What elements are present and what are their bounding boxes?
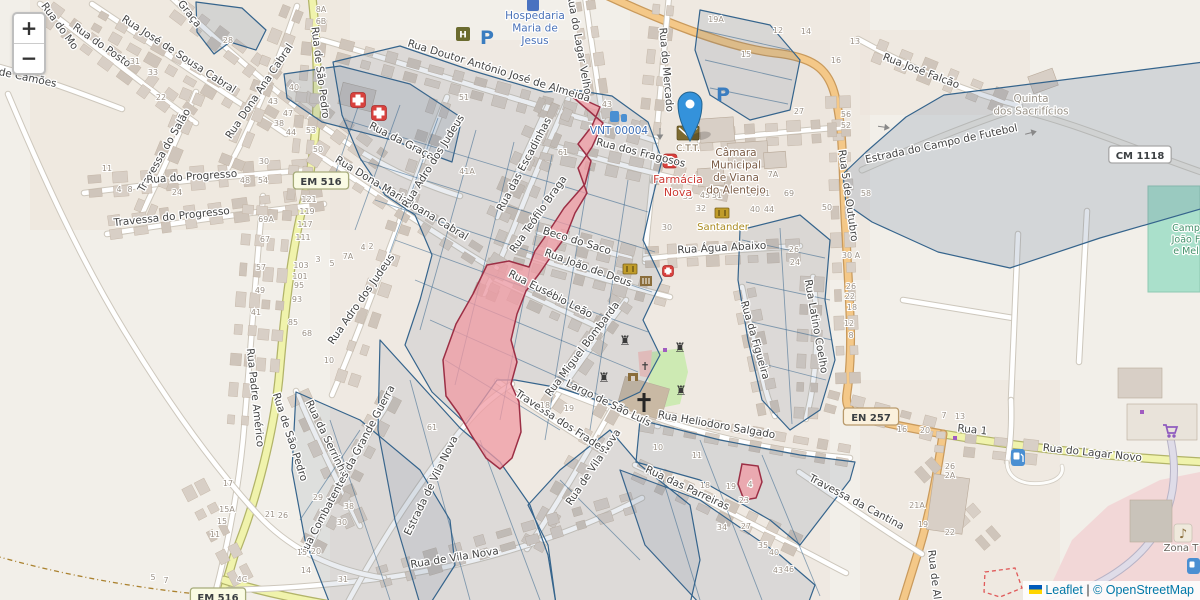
house-number: 35	[758, 541, 768, 550]
house-number: 41	[251, 308, 261, 317]
house-number: 47	[283, 109, 293, 118]
house-number: 85	[288, 318, 298, 327]
house-number: 19	[918, 520, 928, 529]
poi-dot-icon	[1140, 410, 1144, 414]
house-number: 4C	[237, 575, 248, 584]
road-ref-badge: EM 516	[190, 588, 245, 600]
house-number: 30	[259, 157, 269, 166]
poi-label: dos Sacrifícios	[993, 106, 1068, 118]
house-number: 26	[846, 282, 856, 291]
house-number: 21	[265, 510, 275, 519]
house-number: 14	[801, 27, 811, 36]
house-number: 43	[773, 566, 783, 575]
house-number: 43	[602, 100, 612, 109]
svg-text:♜: ♜	[598, 371, 610, 386]
house-number: 24	[172, 188, 182, 197]
poi-label: do Alentejo	[706, 185, 766, 197]
house-number: 18	[540, 401, 550, 410]
poi-label: Quinta	[1013, 93, 1048, 105]
house-number: 5	[150, 573, 155, 582]
house-number: 12	[844, 319, 854, 328]
poi-label: C.T.T.	[676, 144, 700, 154]
poi-partial-icon	[1187, 558, 1200, 574]
house-number: 17	[223, 479, 233, 488]
house-number: 50	[313, 145, 323, 154]
poi-label: Farmácia	[653, 173, 703, 186]
house-number: 8	[127, 185, 132, 194]
house-number: 103	[293, 261, 308, 270]
poi-label: Zona T	[1164, 543, 1200, 554]
house-number: 50	[822, 203, 832, 212]
svg-text:✝: ✝	[640, 360, 649, 373]
house-number: 69A	[258, 215, 274, 224]
house-number: 28	[223, 36, 233, 45]
svg-text:♪: ♪	[1179, 527, 1187, 542]
bank-icon	[715, 208, 729, 218]
oneway-arrow-icon	[878, 124, 890, 130]
house-number: 41A	[459, 167, 475, 176]
house-number: 30	[662, 223, 672, 232]
gate-icon	[628, 373, 638, 381]
house-number: 101	[292, 272, 307, 281]
house-number: 8A	[316, 5, 327, 14]
house-number: 52	[841, 121, 851, 130]
poi-label: Hospedaria	[505, 10, 565, 22]
house-number: 10	[653, 443, 663, 452]
house-number: 34	[717, 523, 727, 532]
house-number: 31	[338, 575, 348, 584]
castle-tower-icon: ♜	[674, 341, 686, 356]
house-number: 93	[292, 295, 302, 304]
house-number: 11	[692, 451, 702, 460]
leaflet-link[interactable]: Leaflet	[1045, 583, 1083, 597]
house-number: 26	[789, 245, 799, 254]
house-number: 40	[750, 205, 760, 214]
house-number: 111	[295, 233, 310, 242]
svg-text:P: P	[716, 84, 730, 106]
map-canvas[interactable]: PP♜♜♜♜✝✝♪H Rua do MoRua do PostoRua José…	[0, 0, 1200, 600]
house-number: 61	[427, 423, 437, 432]
museum-icon	[640, 276, 652, 286]
music-venue-icon: ♪	[1174, 524, 1192, 542]
house-number: 15	[741, 50, 751, 59]
zoom-out-button[interactable]: −	[14, 44, 44, 73]
hospital-icon	[372, 106, 387, 121]
house-number: 29	[313, 493, 323, 502]
svg-text:P: P	[480, 27, 494, 49]
house-number: 26	[945, 462, 955, 471]
poi-dot-icon	[663, 348, 667, 352]
house-number: 7	[941, 411, 946, 420]
house-number: 21A	[909, 501, 925, 510]
poi-label: Santander	[697, 222, 750, 233]
house-number: 20	[920, 426, 930, 435]
ukraine-flag-icon	[1029, 585, 1042, 594]
parking-icon: P	[716, 84, 730, 106]
atm-icon	[623, 264, 637, 274]
house-number: 43	[268, 97, 278, 106]
house-number: 16	[897, 425, 907, 434]
castle-tower-icon: ♜	[675, 384, 687, 399]
house-number: 13	[850, 37, 860, 46]
svg-text:♜: ♜	[675, 384, 687, 399]
house-number: 32	[696, 204, 706, 213]
house-number: 4	[116, 185, 121, 194]
svg-text:♜: ♜	[619, 334, 631, 349]
house-number: 30	[337, 518, 347, 527]
house-number: 117	[297, 220, 312, 229]
house-number: 27	[794, 107, 804, 116]
house-number: 19	[726, 482, 736, 491]
house-number: 2	[368, 242, 373, 251]
poi-label: e Mel	[1173, 246, 1199, 257]
house-number: 30 A	[842, 251, 861, 260]
house-number: 44	[764, 205, 774, 214]
fuel-icon	[1011, 449, 1025, 466]
svg-text:EM 516: EM 516	[300, 177, 341, 188]
house-number: 51	[459, 93, 469, 102]
house-number: 5	[329, 259, 334, 268]
house-number: 33	[148, 68, 158, 77]
guesthouse-icon: H	[456, 27, 470, 41]
wayside-cross-icon: ✝	[640, 360, 649, 373]
house-number: 54	[258, 176, 268, 185]
house-number: 2A	[945, 471, 956, 480]
house-number: 67	[260, 235, 270, 244]
house-number: 8	[848, 331, 853, 340]
house-number: 38	[344, 502, 354, 511]
poi-label: Municipal	[711, 160, 761, 172]
castle-tower-icon: ♜	[619, 334, 631, 349]
house-number: 16	[831, 56, 841, 65]
house-number: 22	[156, 93, 166, 102]
house-number: 26	[278, 511, 288, 520]
house-number: 38	[274, 119, 284, 128]
house-number: 22	[845, 292, 855, 301]
house-number: 23	[739, 496, 749, 505]
house-number: 15A	[219, 505, 235, 514]
house-number: 19A	[708, 15, 724, 24]
house-number: 95	[294, 281, 304, 290]
house-number: 49	[255, 286, 265, 295]
house-number: 121	[301, 195, 316, 204]
poi-label: Câmara	[715, 147, 756, 159]
leaflet-zoom-control: + −	[12, 12, 46, 75]
house-number: 15	[217, 517, 227, 526]
parking-icon: P	[480, 27, 494, 49]
house-number: 20	[311, 547, 321, 556]
house-number: 61	[558, 148, 568, 157]
poi-label: Jesus	[520, 35, 548, 47]
svg-text:EM 516: EM 516	[197, 593, 238, 600]
house-number: 24	[790, 258, 800, 267]
house-number: 44	[286, 128, 296, 137]
poi-dot-icon	[953, 436, 957, 440]
house-number: 53	[306, 126, 316, 135]
zoom-in-button[interactable]: +	[14, 14, 44, 44]
house-number: 11	[102, 164, 112, 173]
house-number: 7A	[768, 170, 779, 179]
house-number: 7A	[343, 252, 354, 261]
attribution-separator: |	[1086, 583, 1089, 597]
road-ref-badge: CM 1118	[1109, 146, 1171, 163]
openstreetmap-link[interactable]: © OpenStreetMap	[1093, 583, 1194, 597]
house-number: 18	[700, 481, 710, 490]
castle-tower-icon: ♜	[598, 371, 610, 386]
house-number: 7	[163, 576, 168, 585]
poi-label: Nova	[664, 186, 692, 199]
house-number: 22	[945, 528, 955, 537]
poi-label: Maria de	[512, 23, 558, 35]
house-number: 119	[299, 207, 314, 216]
house-number: 48	[240, 176, 250, 185]
house-number: 57	[256, 263, 266, 272]
firstaid-icon	[663, 266, 674, 277]
house-number: 15	[297, 548, 307, 557]
house-number: 14	[301, 566, 311, 575]
house-number: 69	[784, 189, 794, 198]
house-number: 4	[747, 480, 752, 489]
house-number: 27	[741, 522, 751, 531]
road-ref-badge: EM 516	[293, 172, 348, 189]
house-number: 6B	[316, 17, 327, 26]
attribution-bar: Leaflet | © OpenStreetMap	[1023, 581, 1200, 600]
house-number: 18	[847, 303, 857, 312]
road-ref-badge: EN 257	[843, 408, 898, 425]
house-number: 11	[210, 530, 220, 539]
house-number: 40	[769, 548, 779, 557]
marker-pin-hole	[686, 100, 695, 109]
hospital-icon	[351, 93, 366, 108]
house-number: 68	[302, 329, 312, 338]
house-number: 58	[861, 189, 871, 198]
poi-label: de Viana	[713, 172, 759, 184]
house-number: 4	[360, 243, 365, 252]
house-number: 3	[315, 255, 320, 264]
svg-text:EN 257: EN 257	[851, 413, 891, 424]
house-number: 46	[784, 565, 794, 574]
house-number: 12	[773, 26, 783, 35]
svg-text:H: H	[459, 31, 467, 41]
svg-text:♜: ♜	[674, 341, 686, 356]
svg-text:CM 1118: CM 1118	[1116, 151, 1165, 162]
map-viewport[interactable]: PP♜♜♜♜✝✝♪H Rua do MoRua do PostoRua José…	[0, 0, 1200, 600]
house-number: 10	[324, 356, 334, 365]
house-number: 13	[955, 412, 965, 421]
house-number: 40	[289, 83, 299, 92]
poi-label: João F	[1171, 235, 1200, 246]
poi-label: Camp	[1172, 223, 1200, 234]
poi-label: VNT 00004	[590, 125, 649, 137]
house-number: 56	[841, 110, 851, 119]
house-number: 31	[130, 57, 140, 66]
house-number: 19	[564, 404, 574, 413]
